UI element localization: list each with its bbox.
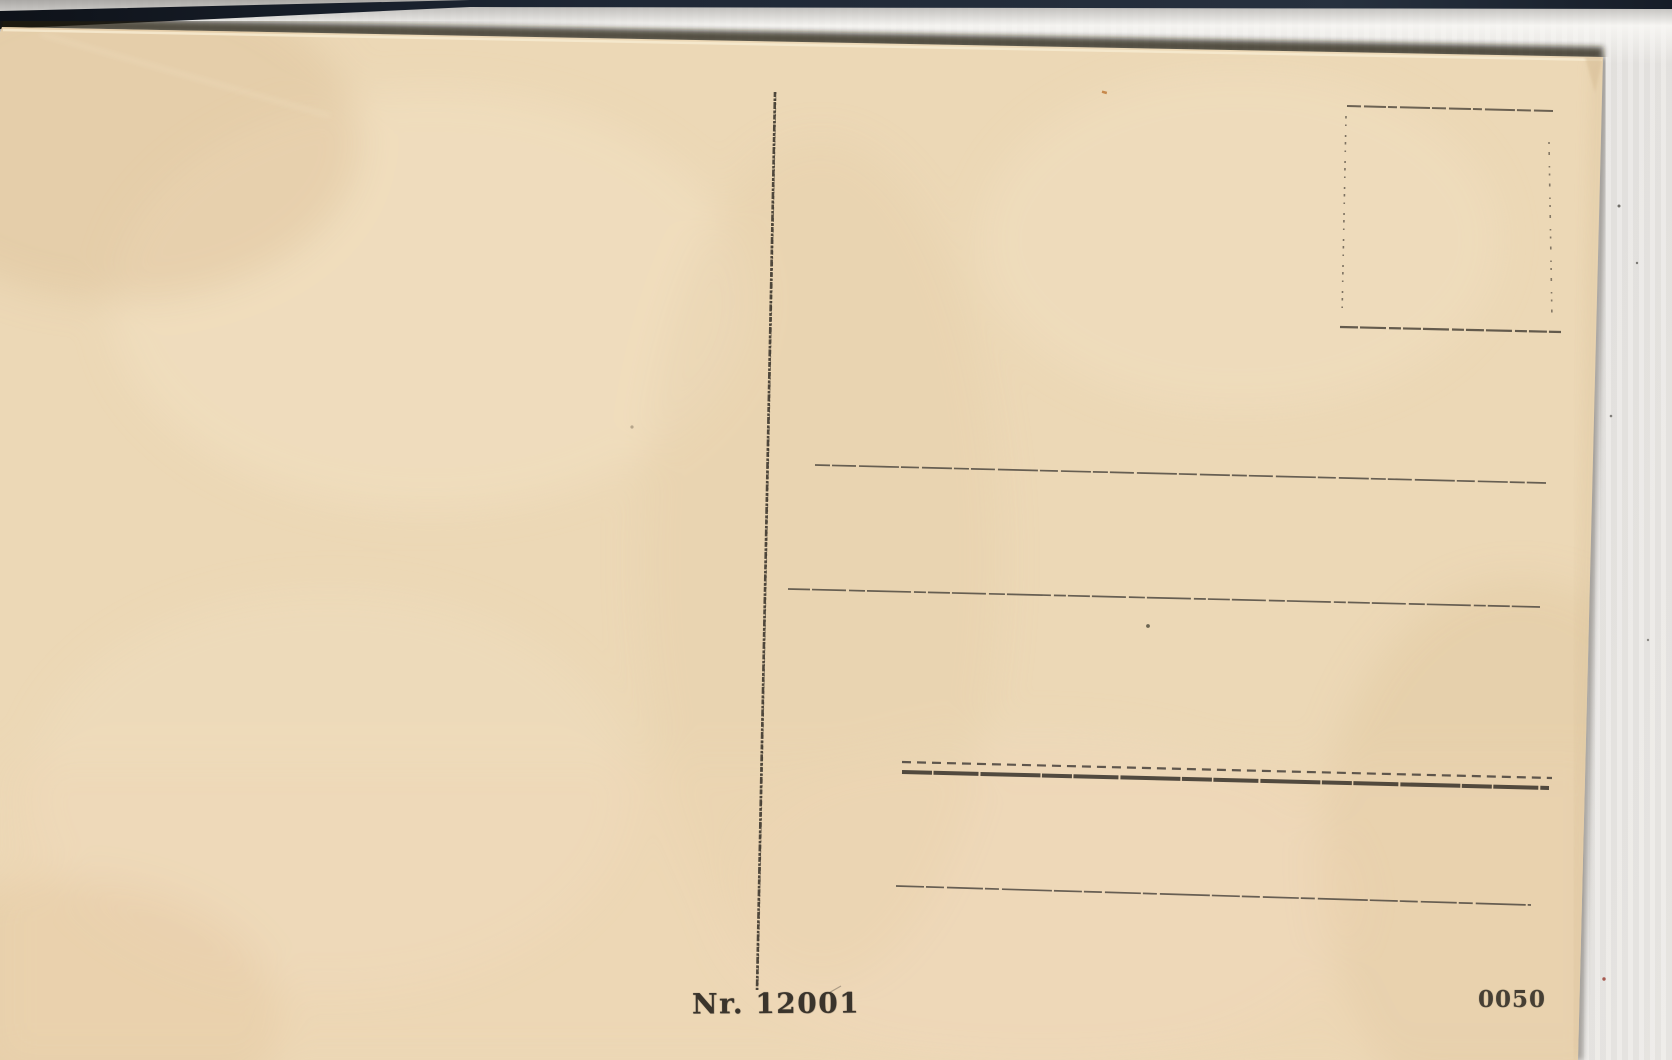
printer-number: Nr. 12001 xyxy=(692,987,860,1021)
postcard-graphic xyxy=(0,0,1672,1060)
postcard-scan: Nr. 12001 0050 xyxy=(0,0,1672,1060)
control-number: 0050 xyxy=(1478,986,1546,1013)
